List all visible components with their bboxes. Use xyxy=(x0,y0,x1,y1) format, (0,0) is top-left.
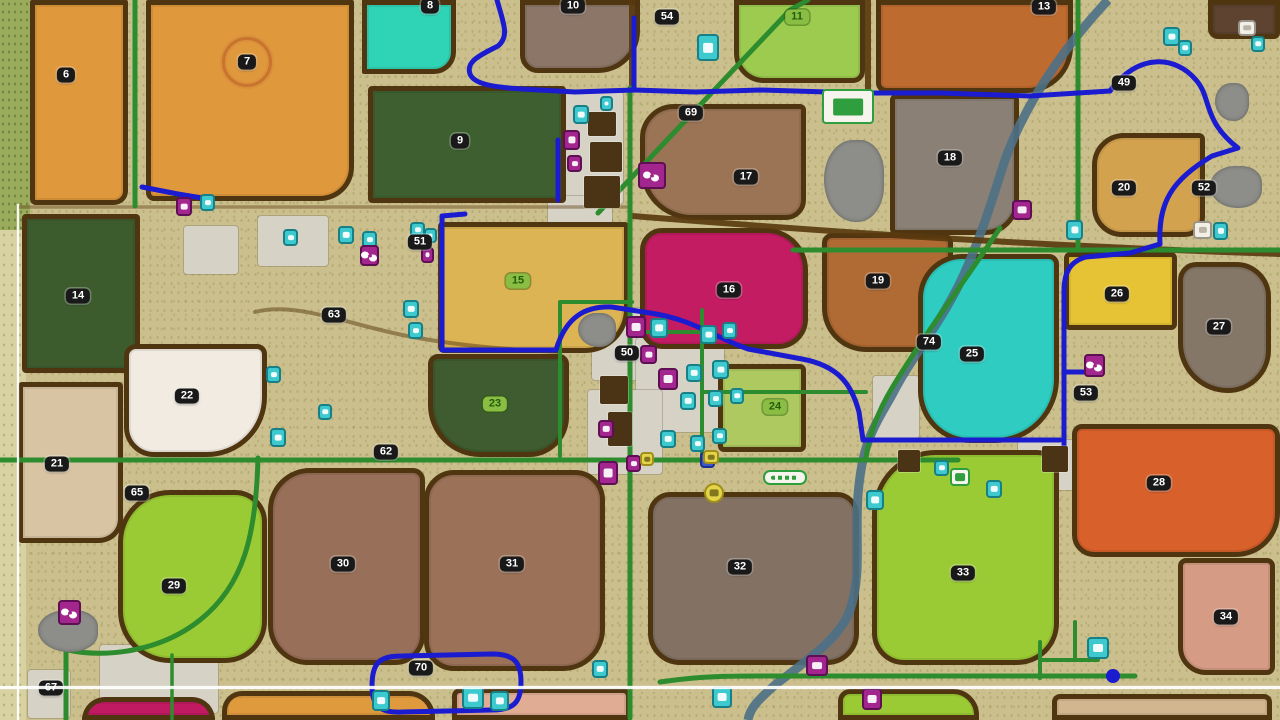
field-label-33: 33 xyxy=(951,566,975,581)
road-marker-74: 74 xyxy=(917,335,941,350)
field-label-25: 25 xyxy=(960,347,984,362)
road-marker-63: 63 xyxy=(322,308,346,323)
field-label-26: 26 xyxy=(1105,287,1129,302)
road-marker-54: 54 xyxy=(655,10,679,25)
field-label-31: 31 xyxy=(500,557,524,572)
road-marker-65: 65 xyxy=(125,486,149,501)
road-marker-51: 51 xyxy=(408,235,432,250)
road-marker-69: 69 xyxy=(679,106,703,121)
road-marker-70: 70 xyxy=(409,661,433,676)
field-label-10: 10 xyxy=(561,0,585,14)
map-boundary-vertical xyxy=(17,204,19,720)
road-marker-53: 53 xyxy=(1074,386,1098,401)
field-label-17: 17 xyxy=(734,170,758,185)
field-label-7: 7 xyxy=(238,55,256,70)
game-map-viewport: 6789101113141516171819202122232425262728… xyxy=(0,0,1280,720)
map-boundary-horizontal xyxy=(0,686,1280,689)
road-marker-50: 50 xyxy=(615,346,639,361)
field-label-23: 23 xyxy=(483,397,507,412)
field-label-8: 8 xyxy=(421,0,439,14)
field-label-11: 11 xyxy=(785,10,809,25)
field-label-15: 15 xyxy=(506,274,530,289)
field-label-9: 9 xyxy=(451,134,469,149)
labels-layer: 6789101113141516171819202122232425262728… xyxy=(0,0,1280,720)
field-label-27: 27 xyxy=(1207,320,1231,335)
field-label-28: 28 xyxy=(1147,476,1171,491)
field-label-13: 13 xyxy=(1032,0,1056,15)
field-label-32: 32 xyxy=(728,560,752,575)
field-label-30: 30 xyxy=(331,557,355,572)
field-label-22: 22 xyxy=(175,389,199,404)
road-marker-52: 52 xyxy=(1192,181,1216,196)
field-label-16: 16 xyxy=(717,283,741,298)
field-label-18: 18 xyxy=(938,151,962,166)
road-marker-62: 62 xyxy=(374,445,398,460)
field-label-20: 20 xyxy=(1112,181,1136,196)
field-label-24: 24 xyxy=(763,400,787,415)
field-label-19: 19 xyxy=(866,274,890,289)
field-label-34: 34 xyxy=(1214,610,1238,625)
field-label-29: 29 xyxy=(162,579,186,594)
field-label-6: 6 xyxy=(57,68,75,83)
field-label-21: 21 xyxy=(45,457,69,472)
road-marker-49: 49 xyxy=(1112,76,1136,91)
field-label-14: 14 xyxy=(66,289,90,304)
